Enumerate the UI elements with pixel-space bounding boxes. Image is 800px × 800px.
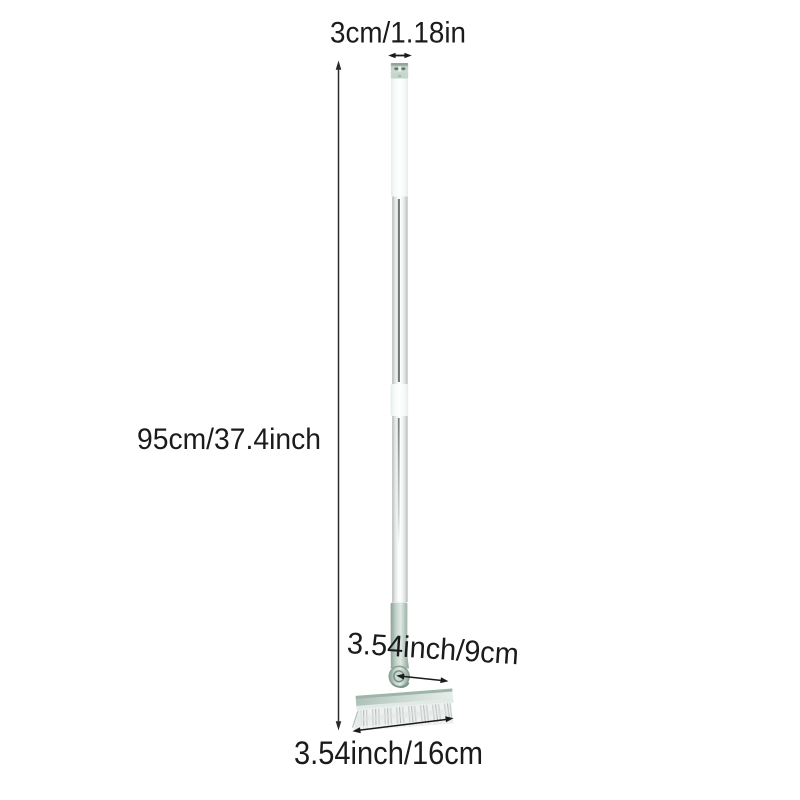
svg-text:95cm/37.4inch: 95cm/37.4inch: [137, 423, 321, 456]
svg-text:3.54inch/16cm: 3.54inch/16cm: [294, 735, 483, 771]
svg-text:3.54inch/9cm: 3.54inch/9cm: [346, 627, 520, 671]
svg-text:3cm/1.18in: 3cm/1.18in: [330, 17, 466, 50]
